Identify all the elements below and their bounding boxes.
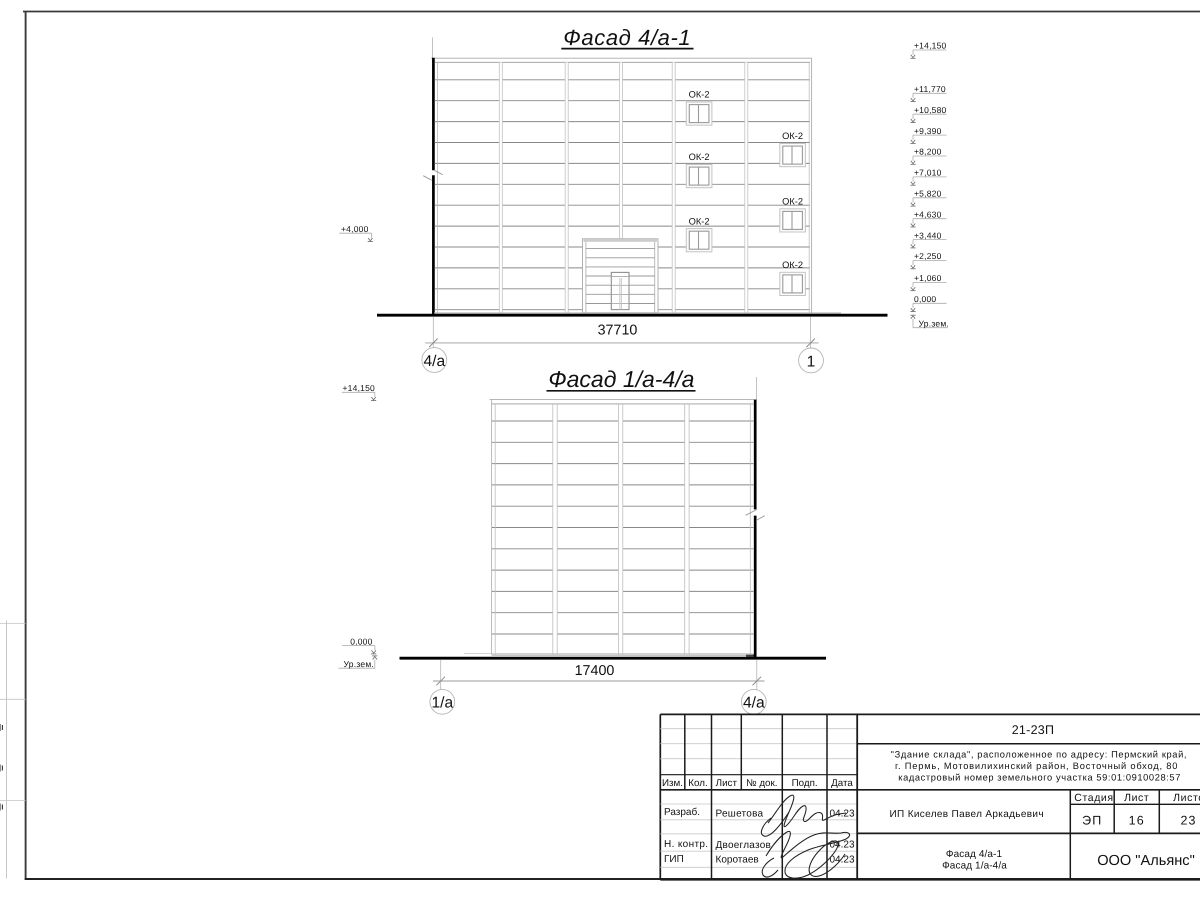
svg-text:Изм.: Изм. xyxy=(662,778,683,789)
svg-text:Подп.: Подп. xyxy=(792,778,818,789)
svg-text:ОК-2: ОК-2 xyxy=(782,131,803,141)
svg-text:Фасад 1/а-4/а: Фасад 1/а-4/а xyxy=(942,860,1007,871)
svg-text:+4,630: +4,630 xyxy=(914,209,942,219)
svg-text:37710: 37710 xyxy=(598,322,638,338)
svg-text:Разраб.: Разраб. xyxy=(664,807,700,818)
svg-text:ОК-2: ОК-2 xyxy=(782,260,803,270)
svg-text:ИП Киселев Павел Аркадьевич: ИП Киселев Павел Аркадьевич xyxy=(890,809,1044,820)
svg-text:Стадия: Стадия xyxy=(1074,792,1113,804)
svg-text:4/а: 4/а xyxy=(423,353,445,370)
svg-text:04.23: 04.23 xyxy=(829,855,854,866)
svg-text:Лист: Лист xyxy=(716,778,738,789)
svg-text:+5,820: +5,820 xyxy=(914,189,942,199)
svg-text:21-23П: 21-23П xyxy=(1012,723,1055,737)
svg-text:ОК-2: ОК-2 xyxy=(689,216,710,226)
svg-text:+9,390: +9,390 xyxy=(914,126,942,136)
svg-text:кадастровый номер земельного у: кадастровый номер земельного участка 59:… xyxy=(898,773,1181,783)
svg-text:1: 1 xyxy=(807,353,816,370)
svg-text:Фасад 1/а-4/а: Фасад 1/а-4/а xyxy=(548,366,694,392)
svg-text:ЭП: ЭП xyxy=(1082,813,1102,827)
svg-text:+1,060: +1,060 xyxy=(914,273,942,283)
svg-text:16: 16 xyxy=(1129,813,1145,827)
svg-text:17400: 17400 xyxy=(575,663,615,679)
svg-text:ОК-2: ОК-2 xyxy=(689,152,710,162)
svg-text:Ур.зем.: Ур.зем. xyxy=(919,318,950,328)
svg-text:ОК-2: ОК-2 xyxy=(782,197,803,207)
svg-text:0,000: 0,000 xyxy=(914,294,936,304)
svg-text:ООО "Альянс": ООО "Альянс" xyxy=(1097,853,1195,869)
svg-text:+4,000: +4,000 xyxy=(341,224,369,234)
svg-text:Кол.: Кол. xyxy=(688,778,707,789)
svg-text:+11,770: +11,770 xyxy=(914,84,946,94)
svg-text:г. Пермь, Мотовилихинский райо: г. Пермь, Мотовилихинский район, Восточн… xyxy=(895,761,1178,771)
svg-text:+14,150: +14,150 xyxy=(914,41,947,51)
svg-text:Коротаев: Коротаев xyxy=(716,855,759,866)
svg-text:4/а: 4/а xyxy=(743,695,765,712)
svg-text:Двоеглазов: Двоеглазов xyxy=(716,840,772,851)
svg-text:23: 23 xyxy=(1180,813,1196,827)
svg-text:Фасад 4/а-1: Фасад 4/а-1 xyxy=(563,25,691,50)
svg-text:1/а: 1/а xyxy=(431,695,453,712)
svg-text:ГИП: ГИП xyxy=(664,854,684,865)
svg-text:+2,250: +2,250 xyxy=(914,251,942,261)
svg-text:+7,010: +7,010 xyxy=(914,168,942,178)
svg-text:Решетова: Решетова xyxy=(716,809,764,820)
svg-text:+8,200: +8,200 xyxy=(914,147,942,157)
svg-text:Дата: Дата xyxy=(831,778,853,789)
svg-text:0,000: 0,000 xyxy=(350,636,372,646)
svg-text:+10,580: +10,580 xyxy=(914,105,947,115)
svg-text:+14,150: +14,150 xyxy=(343,383,376,393)
svg-text:Ур.зем.: Ур.зем. xyxy=(344,659,375,669)
svg-text:Н. контр.: Н. контр. xyxy=(664,839,708,850)
svg-text:Фасад 4/а-1: Фасад 4/а-1 xyxy=(946,849,1003,860)
svg-text:"Здание склада", расположенное: "Здание склада", расположенное по адресу… xyxy=(891,750,1187,760)
svg-text:№ док.: № док. xyxy=(746,778,777,789)
svg-text:Лист: Лист xyxy=(1124,792,1149,804)
svg-text:ОК-2: ОК-2 xyxy=(689,90,710,100)
svg-text:+3,440: +3,440 xyxy=(914,230,942,240)
svg-text:Листов: Листов xyxy=(1173,792,1200,804)
